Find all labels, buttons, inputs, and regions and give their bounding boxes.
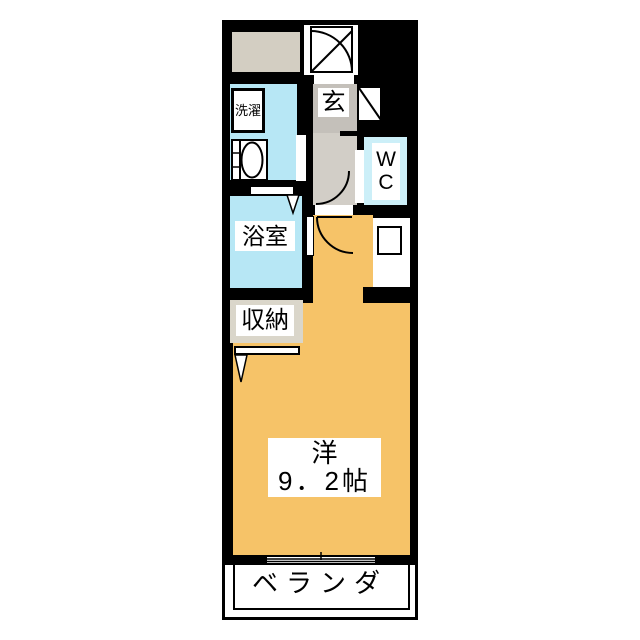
veranda-window	[267, 555, 375, 565]
washbasin-unit	[231, 139, 268, 181]
floorplan: 玄 洗濯 W C 浴室 収納 洋 9．2帖	[0, 0, 640, 640]
main-room-type: 洋	[311, 440, 337, 467]
entrance-label: 玄	[318, 88, 349, 117]
laundry-label-text: 洗濯	[235, 104, 261, 118]
washing-machine-pan: 洗濯	[231, 88, 265, 133]
bathroom-door-track	[250, 186, 294, 195]
kitchen-appliance	[377, 226, 402, 255]
hallway	[313, 133, 357, 205]
main-room-label: 洋 9．2帖	[268, 438, 381, 497]
closet-label-text: 収納	[241, 308, 289, 333]
main-room-size: 9．2帖	[278, 468, 371, 495]
step-edge	[340, 131, 357, 136]
veranda-label-text: ベランダ	[252, 570, 388, 597]
shoe-cabinet	[357, 86, 382, 122]
wc-label-line1: W	[376, 149, 396, 171]
entrance-label-text: 玄	[322, 90, 346, 115]
veranda-label: ベランダ	[240, 567, 400, 601]
bathroom-label: 浴室	[235, 221, 295, 251]
bathroom-label-text: 浴室	[242, 224, 288, 248]
entrance-threshold	[314, 75, 354, 84]
wc-label: W C	[372, 143, 400, 200]
wc-label-line2: C	[378, 172, 393, 194]
main-room-door-leaf	[306, 216, 314, 256]
service-space	[232, 32, 300, 72]
closet-door-track	[234, 346, 300, 355]
kitchen-wall	[363, 287, 410, 303]
wc-door	[355, 150, 364, 203]
entrance-door-recess	[304, 25, 358, 75]
washroom-door	[296, 135, 306, 181]
closet-label: 収納	[236, 305, 294, 336]
